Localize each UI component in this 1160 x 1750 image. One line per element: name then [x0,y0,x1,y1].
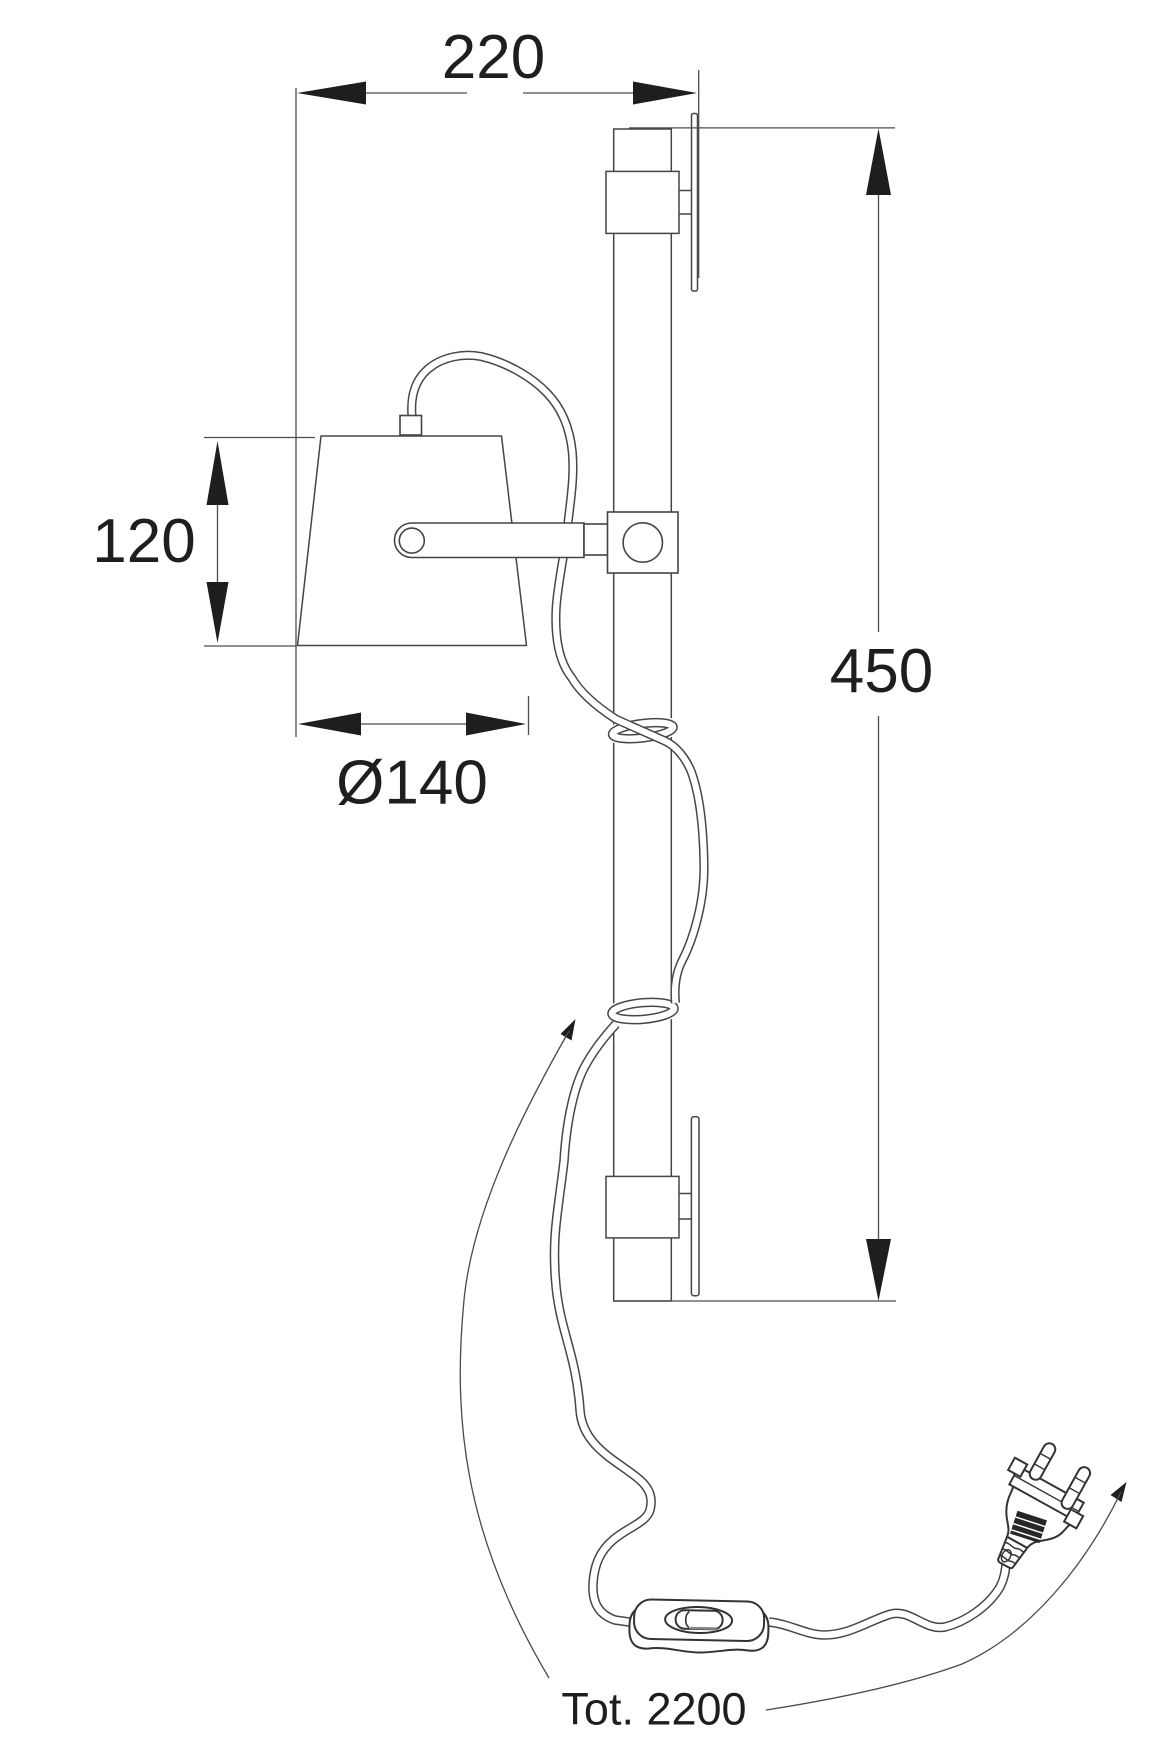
svg-text:120: 120 [92,507,195,576]
svg-text:220: 220 [442,23,545,92]
svg-text:Tot. 2200: Tot. 2200 [561,1684,746,1735]
svg-text:Ø140: Ø140 [336,749,488,818]
svg-text:450: 450 [830,637,933,706]
